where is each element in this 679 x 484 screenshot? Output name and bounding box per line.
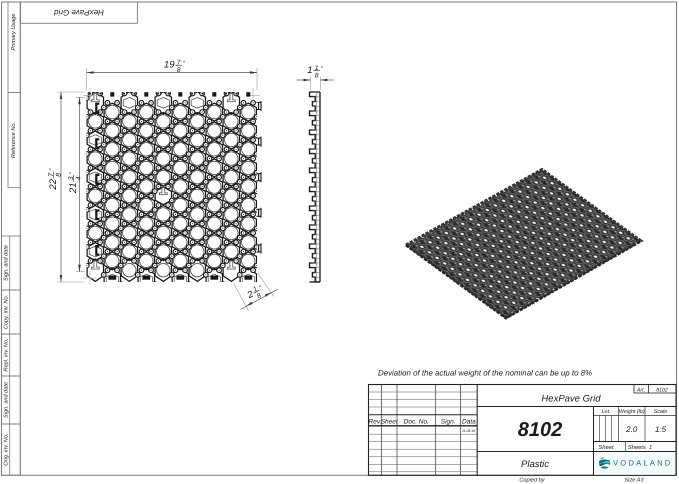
svg-text:2.0: 2.0 <box>625 425 638 434</box>
svg-text:Data: Data <box>462 418 476 425</box>
svg-text:1: 1 <box>307 65 312 76</box>
svg-text:Art.: Art. <box>636 387 645 393</box>
svg-text:Sheet: Sheet <box>598 444 614 451</box>
svg-text:Repl. inv. No.: Repl. inv. No. <box>2 338 9 371</box>
svg-text:8102: 8102 <box>656 387 668 393</box>
svg-text:1:5: 1:5 <box>655 425 667 434</box>
svg-text:″: ″ <box>321 66 324 73</box>
svg-text:Copy. inv. No.: Copy. inv. No. <box>2 295 9 329</box>
svg-text:Sign.: Sign. <box>441 418 456 425</box>
svg-text:HexPave Grid: HexPave Grid <box>54 8 104 17</box>
svg-text:VODALAND: VODALAND <box>613 459 673 468</box>
svg-text:Rev.: Rev. <box>369 418 382 425</box>
svg-text:19: 19 <box>164 60 175 71</box>
svg-text:Sign. and date: Sign. and date <box>2 382 9 418</box>
svg-text:Let.: Let. <box>602 409 611 415</box>
svg-text:21: 21 <box>68 183 79 195</box>
svg-text:Sheets 1: Sheets 1 <box>628 444 653 451</box>
svg-text:22: 22 <box>48 178 59 190</box>
svg-text:Doc. No.: Doc. No. <box>404 418 429 425</box>
svg-text:Sheet: Sheet <box>381 418 399 425</box>
svg-text:″: ″ <box>69 171 76 174</box>
svg-text:Plastic: Plastic <box>521 459 549 470</box>
svg-text:8: 8 <box>256 292 263 300</box>
svg-text:HexPave Grid: HexPave Grid <box>541 394 601 405</box>
svg-text:8: 8 <box>177 67 181 74</box>
svg-text:Sign. and date: Sign. and date <box>2 245 9 281</box>
svg-text:8: 8 <box>55 173 62 177</box>
svg-text:4: 4 <box>75 176 82 180</box>
svg-text:″: ″ <box>49 167 56 170</box>
svg-text:8: 8 <box>315 72 319 79</box>
svg-text:Scale: Scale <box>654 409 668 415</box>
svg-text:Primary Usage: Primary Usage <box>10 14 17 51</box>
svg-text:Weight (lb): Weight (lb) <box>619 409 645 415</box>
svg-text:Copied by: Copied by <box>519 477 545 484</box>
svg-text:″: ″ <box>258 284 264 292</box>
svg-text:Orig. inv. No.: Orig. inv. No. <box>2 434 9 466</box>
svg-text:8102: 8102 <box>518 419 563 441</box>
svg-text:Reference No.: Reference No. <box>10 122 17 158</box>
svg-text:Deviation of the actual weight: Deviation of the actual weight of the no… <box>378 369 592 378</box>
svg-text:11.08.18: 11.08.18 <box>462 429 475 433</box>
svg-text:″: ″ <box>183 60 186 67</box>
svg-text:Size A3: Size A3 <box>624 477 644 484</box>
